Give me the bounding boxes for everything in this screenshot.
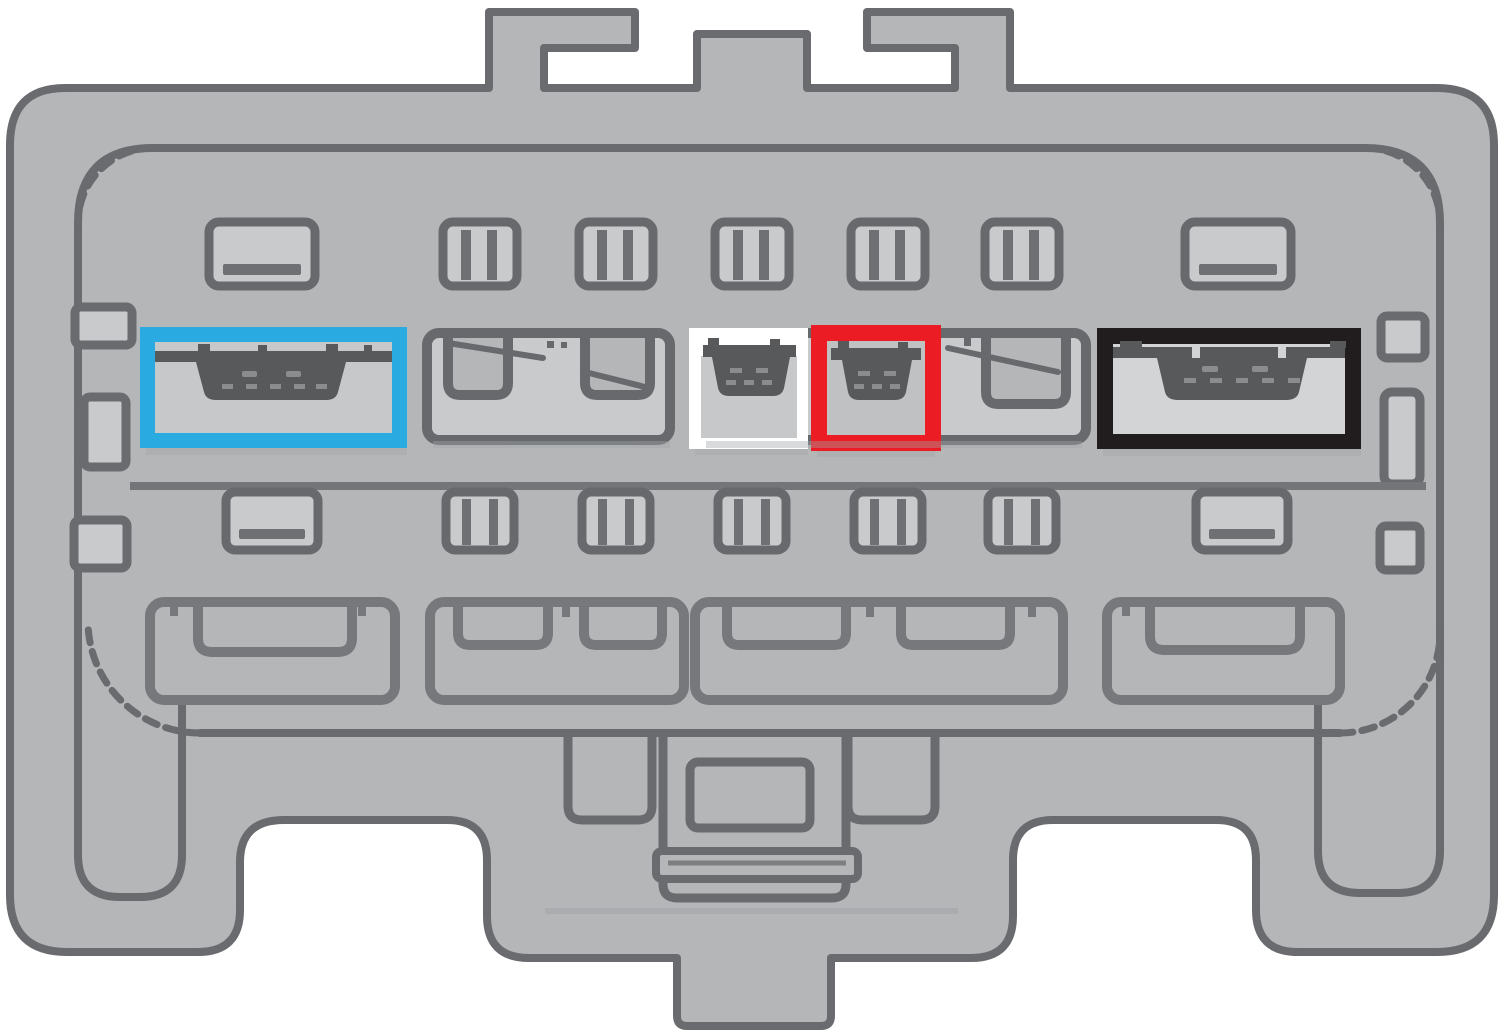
- cavity-row4-2: [430, 602, 684, 700]
- right-wall-key-slot-lower: [1380, 526, 1420, 570]
- terminal-pin: [196, 362, 346, 400]
- cavity-row3-wide-right: [1196, 492, 1288, 550]
- row-2-terminal-cavities: [140, 325, 1361, 457]
- left-wall-key-slot-middle: [84, 397, 126, 467]
- right-wall-key-slot-middle: [1384, 392, 1420, 484]
- terminal-pin: [712, 357, 790, 396]
- cavity-row4-3: [695, 602, 1063, 700]
- black-highlight-box: [1097, 328, 1361, 449]
- cavity-row3-small-1: [446, 492, 514, 550]
- left-wall-key-slot-upper: [75, 307, 132, 345]
- left-wall-key-slot-lower: [74, 520, 127, 568]
- cavity-row1-small-4: [851, 222, 925, 286]
- white-highlight-box: [689, 328, 808, 449]
- cavity-row1-small-5: [985, 222, 1059, 286]
- connector-diagram: [0, 0, 1500, 1032]
- cavity-row1-small-3: [715, 222, 789, 286]
- row-4-large-cavities: [150, 602, 1340, 700]
- cavity-row3-small-5: [988, 492, 1056, 550]
- right-wall-key-slot-upper: [1381, 316, 1425, 358]
- cavity-row1-small-1: [443, 222, 517, 286]
- cavity-row1-small-2: [579, 222, 653, 286]
- cavity-row4-1: [150, 602, 395, 700]
- terminal-pin: [1157, 358, 1307, 400]
- cavity-row2-open-left: [427, 333, 670, 440]
- red-highlight-box: [811, 325, 941, 451]
- terminal-pin: [842, 360, 912, 400]
- cyan-highlight-box: [140, 327, 407, 448]
- cavity-row3-small-2: [582, 492, 650, 550]
- cavity-row1-wide-left: [209, 222, 315, 286]
- connector-face-svg: [0, 0, 1500, 1032]
- cavity-row3-small-4: [854, 492, 922, 550]
- cavity-row4-4: [1107, 602, 1340, 700]
- cavity-row3-wide-left: [226, 492, 318, 550]
- cavity-row1-wide-right: [1185, 222, 1291, 286]
- cavity-row3-small-3: [718, 492, 786, 550]
